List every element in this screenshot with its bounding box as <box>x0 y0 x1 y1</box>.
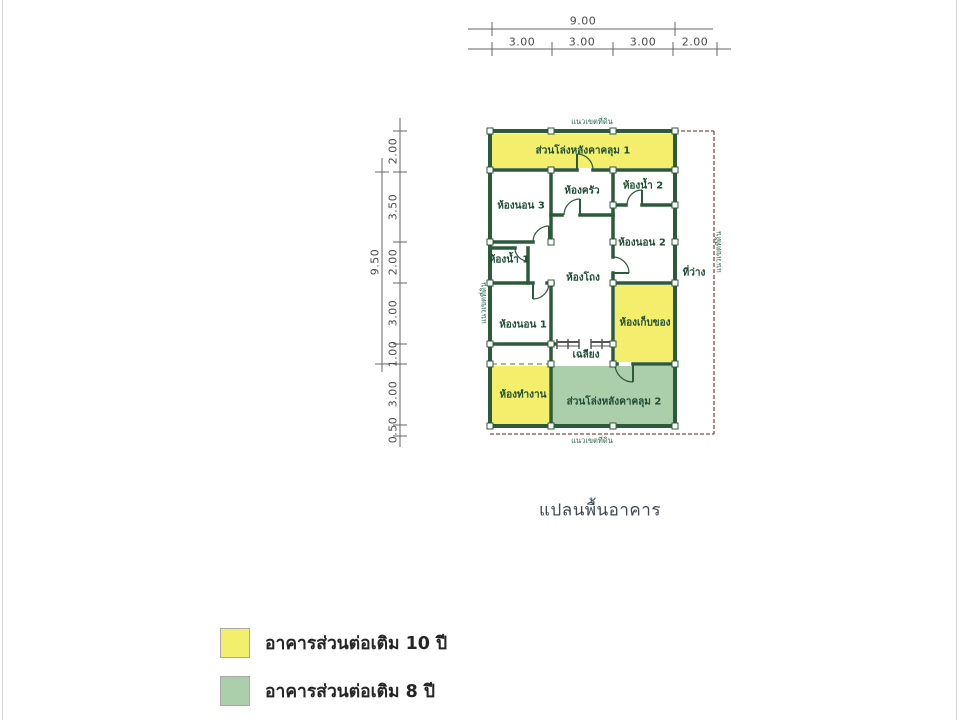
dim-left-total: 9.50 <box>369 249 382 276</box>
dim-top-seg-3: 3.00 <box>630 36 657 49</box>
legend-swatch-8yr <box>220 676 250 706</box>
dim-left-seg-2: 3.50 <box>387 194 400 221</box>
room-label-bedroom-1: ห้องนอน 1 <box>499 318 547 333</box>
room-label-kitchen: ห้องครัว <box>564 184 599 199</box>
legend-label-8yr: อาคารส่วนต่อเติม 8 ปี <box>265 677 435 705</box>
dim-left-seg-3: 2.00 <box>387 249 400 276</box>
boundary-label-right: แนวเขตที่ดิน <box>713 231 725 273</box>
legend-swatch-10yr <box>220 628 250 658</box>
room-label-open-roof-1: ส่วนโล่งหลังคาคลุม 1 <box>536 144 631 159</box>
legend-item-10yr: อาคารส่วนต่อเติม 10 ปี <box>220 628 447 658</box>
room-label-bedroom-2: ห้องนอน 2 <box>618 236 666 251</box>
dim-top-seg-4: 2.00 <box>682 36 709 49</box>
room-label-bathroom-2: ห้องน้ำ 2 <box>623 179 663 194</box>
room-label-open-space: ที่ว่าง <box>683 266 706 281</box>
floor-plan-slide: 9.00 3.00 3.00 3.00 2.00 9.50 2.00 3.50 … <box>0 0 960 720</box>
legend-item-8yr: อาคารส่วนต่อเติม 8 ปี <box>220 676 435 706</box>
room-label-bedroom-3: ห้องนอน 3 <box>497 199 545 214</box>
floor-plan-drawing <box>0 0 960 720</box>
plan-caption: แปลนพื้นอาคาร <box>539 497 661 524</box>
boundary-label-bottom: แนวเขตที่ดิน <box>571 435 613 447</box>
room-label-open-roof-2: ส่วนโล่งหลังคาคลุม 2 <box>567 395 662 410</box>
dim-left-seg-6: 3.00 <box>387 381 400 408</box>
boundary-label-top: แนวเขตที่ดิน <box>571 116 613 128</box>
dim-left-seg-5: 1.00 <box>387 341 400 368</box>
legend-label-10yr: อาคารส่วนต่อเติม 10 ปี <box>265 629 447 657</box>
dim-top-seg-2: 3.00 <box>569 36 596 49</box>
dim-left-seg-7: 0.50 <box>387 417 400 444</box>
room-label-hall: ห้องโถง <box>566 271 600 286</box>
room-label-work-room: ห้องทำงาน <box>499 388 546 403</box>
dim-top-seg-1: 3.00 <box>509 36 536 49</box>
room-label-bathroom-1: ห้องน้ำ 1 <box>489 253 529 268</box>
boundary-label-left: แนวเขตที่ดิน <box>478 282 490 324</box>
room-label-storage: ห้องเก็บของ <box>619 316 670 331</box>
dim-top-total: 9.00 <box>570 15 597 28</box>
room-label-porch: เฉลียง <box>572 348 599 363</box>
dim-left-seg-4: 3.00 <box>387 300 400 327</box>
dim-left-seg-1: 2.00 <box>387 138 400 165</box>
